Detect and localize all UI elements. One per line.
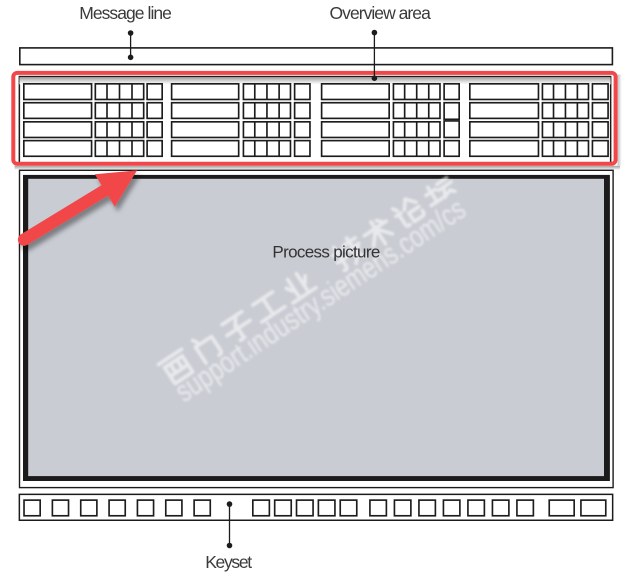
svg-text:Keyset: Keyset	[205, 552, 252, 572]
svg-text:Message line: Message line	[79, 3, 172, 23]
svg-text:Overview area: Overview area	[330, 3, 432, 23]
svg-text:Process picture: Process picture	[272, 243, 380, 262]
